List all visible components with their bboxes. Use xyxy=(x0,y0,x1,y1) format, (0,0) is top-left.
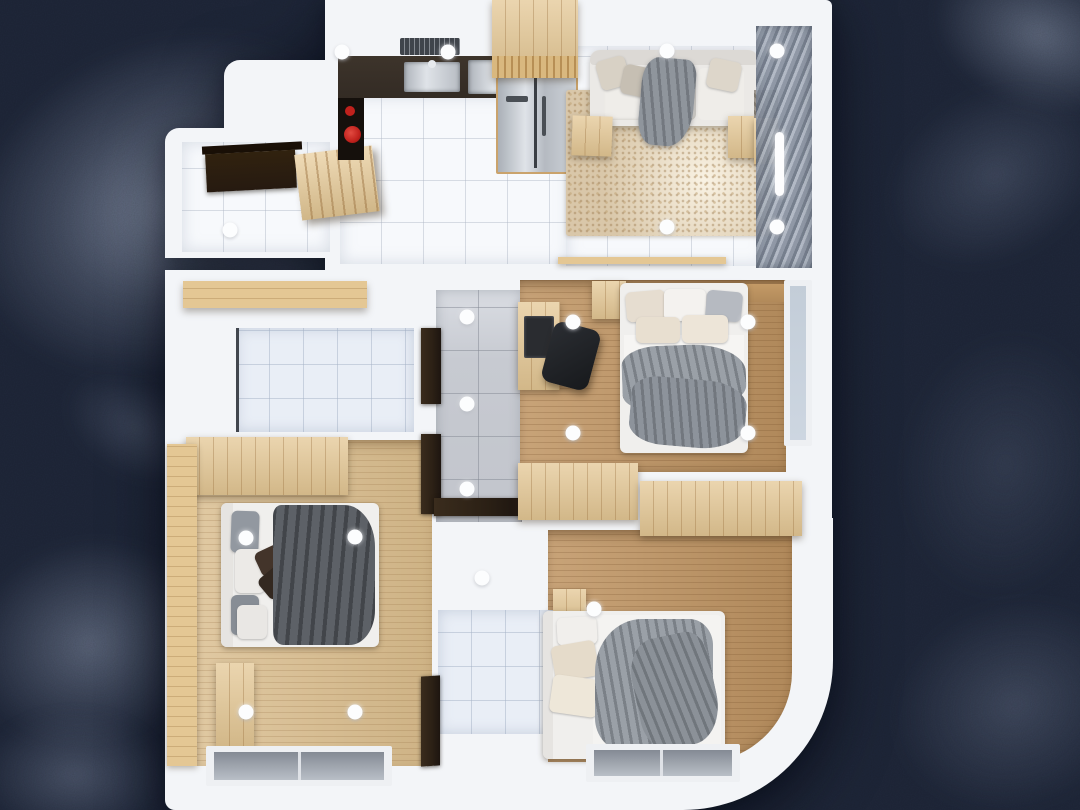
floorplan-render xyxy=(0,0,1080,810)
ceiling-light-dot xyxy=(348,530,363,545)
ceiling-light-dot xyxy=(770,220,785,235)
ceiling-light-dot xyxy=(223,223,238,238)
ceiling-light-dot xyxy=(460,482,475,497)
ceiling-light-dot xyxy=(460,397,475,412)
ceiling-light-dot xyxy=(566,426,581,441)
ceiling-light-dot xyxy=(660,220,675,235)
ceiling-light-dot xyxy=(441,45,456,60)
ceiling-light-dot xyxy=(475,571,490,586)
ceiling-light-dot xyxy=(770,44,785,59)
ceiling-light-dot xyxy=(239,705,254,720)
ceiling-light-dot xyxy=(460,310,475,325)
ceiling-light-dot xyxy=(587,602,602,617)
ceiling-light-dot xyxy=(335,45,350,60)
ceiling-light-dot xyxy=(239,531,254,546)
ceiling-light-dot xyxy=(741,315,756,330)
ceiling-light-dot xyxy=(660,44,675,59)
ceiling-lights-layer xyxy=(0,0,1080,810)
ceiling-light-dot xyxy=(741,426,756,441)
apartment-plan xyxy=(0,0,1080,810)
ceiling-light-dot xyxy=(566,315,581,330)
ceiling-light-dot xyxy=(348,705,363,720)
